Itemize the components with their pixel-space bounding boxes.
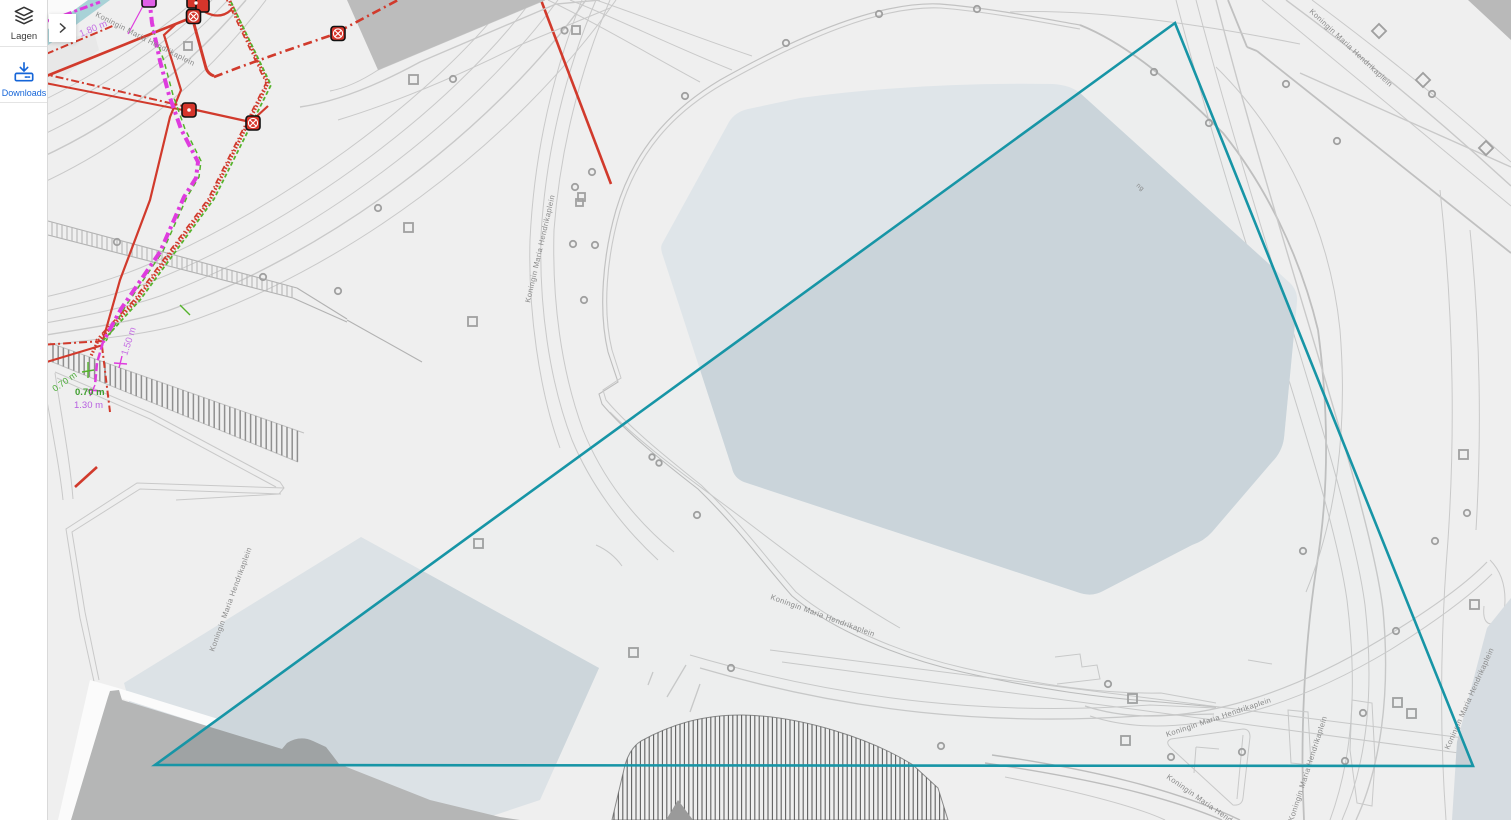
svg-text:1.30 m: 1.30 m <box>74 400 103 411</box>
svg-text:0.70 m: 0.70 m <box>75 387 105 398</box>
